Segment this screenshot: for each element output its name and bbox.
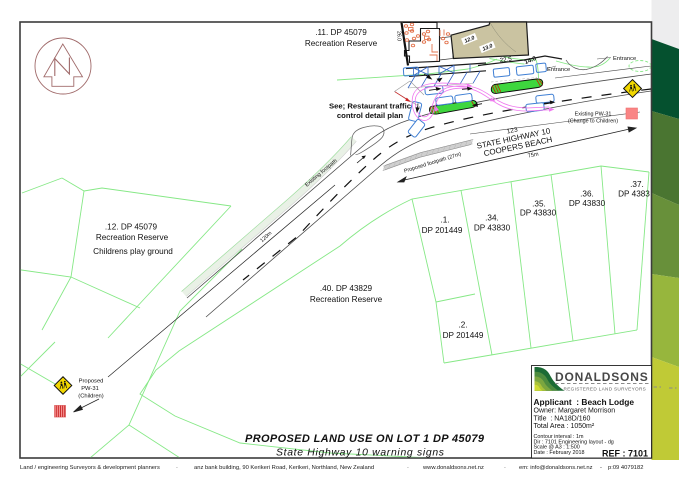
svg-text:-: -: [600, 465, 602, 471]
svg-text:·: ·: [504, 465, 506, 471]
svg-text:.2.: .2.: [458, 321, 467, 330]
svg-text:.1.: .1.: [440, 216, 449, 225]
svg-text:Land / engineering Surveyors &: Land / engineering Surveyors & developme…: [20, 465, 160, 471]
svg-text:PROPOSED LAND USE ON LOT 1 DP: PROPOSED LAND USE ON LOT 1 DP 45079: [245, 433, 485, 445]
svg-text:p:09 4079182: p:09 4079182: [608, 465, 643, 471]
svg-text:em: info@donaldsons.net.nz: em: info@donaldsons.net.nz: [519, 465, 593, 471]
svg-text:DP 43830: DP 43830: [520, 209, 557, 218]
svg-text:anz bank building, 90 Kerikeri: anz bank building, 90 Kerikeri Road, Ker…: [194, 465, 374, 471]
svg-text:Entrance: Entrance: [547, 67, 570, 73]
svg-text:.34.: .34.: [485, 214, 499, 223]
svg-text:.36.: .36.: [580, 190, 594, 199]
svg-text:·: ·: [407, 465, 409, 471]
svg-text:Applicant : Beach Lodge: Applicant : Beach Lodge: [534, 397, 635, 407]
svg-text:Entrance: Entrance: [613, 56, 636, 62]
svg-text:Total Area : 1050m²: Total Area : 1050m²: [534, 423, 595, 430]
svg-text:.12. DP 45079: .12. DP 45079: [105, 223, 158, 232]
svg-text:·: ·: [176, 465, 178, 471]
svg-text:REGISTERED LAND SURVEYORS: REGISTERED LAND SURVEYORS: [564, 387, 647, 392]
svg-text:.35.: .35.: [532, 200, 546, 209]
svg-text:DP 43830: DP 43830: [569, 199, 606, 208]
svg-text:Date : February 2018: Date : February 2018: [534, 450, 585, 456]
svg-text:DP 43830: DP 43830: [474, 224, 511, 233]
svg-text:Recreation Reserve: Recreation Reserve: [305, 39, 378, 48]
svg-text:Proposed: Proposed: [79, 379, 104, 385]
svg-text:control detail plan: control detail plan: [337, 111, 404, 120]
svg-text:Owner: Margaret Morrison: Owner: Margaret Morrison: [534, 408, 616, 415]
svg-text:DP 201449: DP 201449: [443, 331, 484, 340]
svg-text:DP 4383: DP 4383: [618, 190, 650, 199]
svg-text:PW-31: PW-31: [81, 386, 99, 392]
svg-text:.37.: .37.: [630, 180, 644, 189]
svg-text:.11. DP 45079: .11. DP 45079: [315, 28, 367, 37]
svg-text:State Highway 10 warning signs: State Highway 10 warning signs: [276, 448, 444, 459]
svg-text:DP 201449: DP 201449: [422, 226, 463, 235]
svg-text:(Children): (Children): [78, 394, 104, 400]
svg-text:Title : NA18D/160: Title : NA18D/160: [534, 416, 591, 423]
svg-text:(Change to Children): (Change to Children): [568, 119, 618, 125]
svg-text:.40. DP 43829: .40. DP 43829: [320, 284, 373, 293]
svg-text:26.0: 26.0: [396, 31, 402, 41]
svg-text:Childrens play ground: Childrens play ground: [93, 247, 173, 256]
svg-text:www.donaldsons.net.nz: www.donaldsons.net.nz: [422, 465, 484, 471]
svg-text:Recreation Reserve: Recreation Reserve: [310, 295, 383, 304]
svg-text:DONALDSONS: DONALDSONS: [555, 370, 648, 384]
svg-text:Recreation Reserve: Recreation Reserve: [96, 233, 169, 242]
svg-text:See; Restaurant traffic: See; Restaurant traffic: [329, 102, 412, 111]
svg-text:Existing PW-31: Existing PW-31: [575, 112, 612, 118]
svg-text:REF : 7101: REF : 7101: [602, 449, 648, 459]
